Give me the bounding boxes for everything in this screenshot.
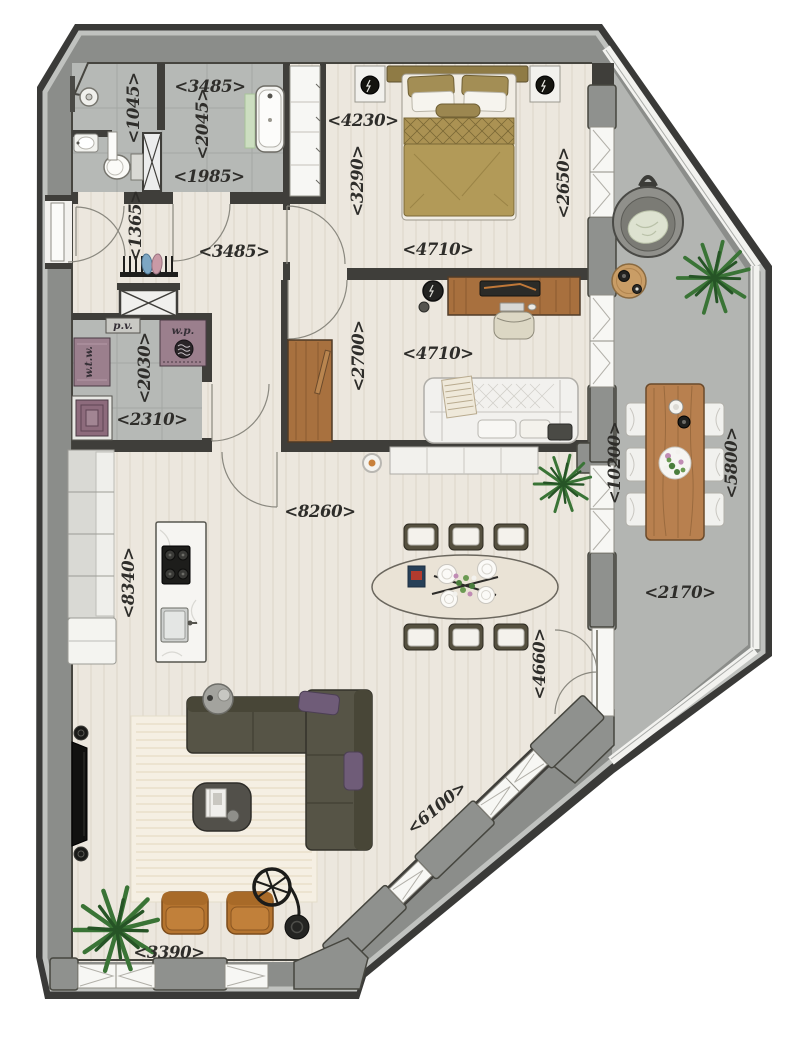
pv-label: p.v. [113, 320, 133, 332]
dim-terrace-right-h: <5800> [722, 427, 741, 498]
dim-office-h: <2700> [349, 320, 368, 391]
dining-table [372, 555, 558, 619]
armchair-left [162, 892, 208, 934]
kitchen-cabinets [68, 450, 116, 664]
purple-pillow [344, 752, 363, 790]
floor-plan-page: p.v. w.p. w.t.w. [0, 0, 803, 1050]
speaker [74, 847, 88, 861]
dim-bath-small-w: <1045> [124, 72, 143, 143]
throw-blanket [442, 376, 477, 418]
dim-bedroom-bottom-w: <4710> [402, 240, 473, 259]
dim-office-w: <4710> [402, 344, 473, 363]
dim-living-w: <8260> [284, 502, 355, 521]
bedside-lamp-left [361, 76, 379, 94]
terrace-chairs-right [702, 403, 724, 526]
washing-machine [72, 396, 112, 440]
dim-hall-h: <1365> [126, 190, 145, 261]
sideboard [390, 447, 538, 474]
side-table [203, 684, 233, 714]
bathtub [245, 86, 284, 152]
speaker [74, 726, 88, 740]
wtw-label: w.t.w. [83, 346, 95, 378]
dining-chair-cushions-bottom [408, 629, 524, 646]
bedroom-closet [290, 66, 320, 196]
dim-utility-h: <2030> [135, 332, 154, 403]
dim-bedroom-h: <3290> [348, 145, 367, 216]
chesterfield-sofa [424, 376, 578, 443]
desk [448, 277, 580, 315]
dining-chair-cushions-top [408, 528, 524, 545]
sofa-pillow [478, 420, 516, 438]
terrace-dining [626, 384, 724, 540]
terrace-chairs-left [626, 403, 648, 526]
purple-pillow [298, 691, 340, 716]
coffee-table [193, 783, 251, 831]
sofa-pillow [520, 420, 550, 438]
office-cabinet [288, 340, 332, 442]
desk-chair [494, 312, 534, 339]
terrace-centerpiece [659, 447, 691, 479]
keyboard [500, 303, 524, 311]
terrace-table [646, 384, 704, 540]
dim-bath-bottom-w: <1985> [173, 167, 244, 186]
dim-terrace-w: <2170> [644, 583, 715, 602]
dim-living-h: <8340> [119, 547, 138, 618]
dim-bedroom-top-w: <4230> [327, 111, 398, 130]
kitchen-island [156, 522, 206, 662]
dim-terrace-left-h: <10200> [605, 422, 624, 504]
dim-lounge-w: <3390> [133, 943, 204, 962]
ceiling-lamp [363, 454, 381, 472]
shaft [120, 290, 177, 316]
bedside-lamp-right [536, 76, 554, 94]
wp-label: w.p. [172, 325, 195, 337]
dim-bedroom-right-h: <2650> [554, 147, 573, 218]
balcony-side-table [612, 264, 646, 298]
armchair-right [227, 892, 273, 934]
bed [387, 66, 528, 220]
mouse [528, 304, 536, 310]
sofa-throw-dark [548, 424, 572, 440]
coaster [227, 810, 239, 822]
tv [72, 742, 87, 846]
dim-utility-w: <2310> [116, 410, 187, 429]
table-book [408, 566, 425, 587]
dim-dining-h: <4660> [530, 628, 549, 699]
dim-hall-w: <3485> [198, 242, 269, 261]
washbasin [74, 134, 98, 152]
toilet-door-leaf [108, 132, 117, 160]
dim-bath-h: <2045> [193, 88, 212, 159]
duct [143, 133, 161, 191]
floor-plan-canvas: p.v. w.p. w.t.w. [0, 0, 803, 1050]
